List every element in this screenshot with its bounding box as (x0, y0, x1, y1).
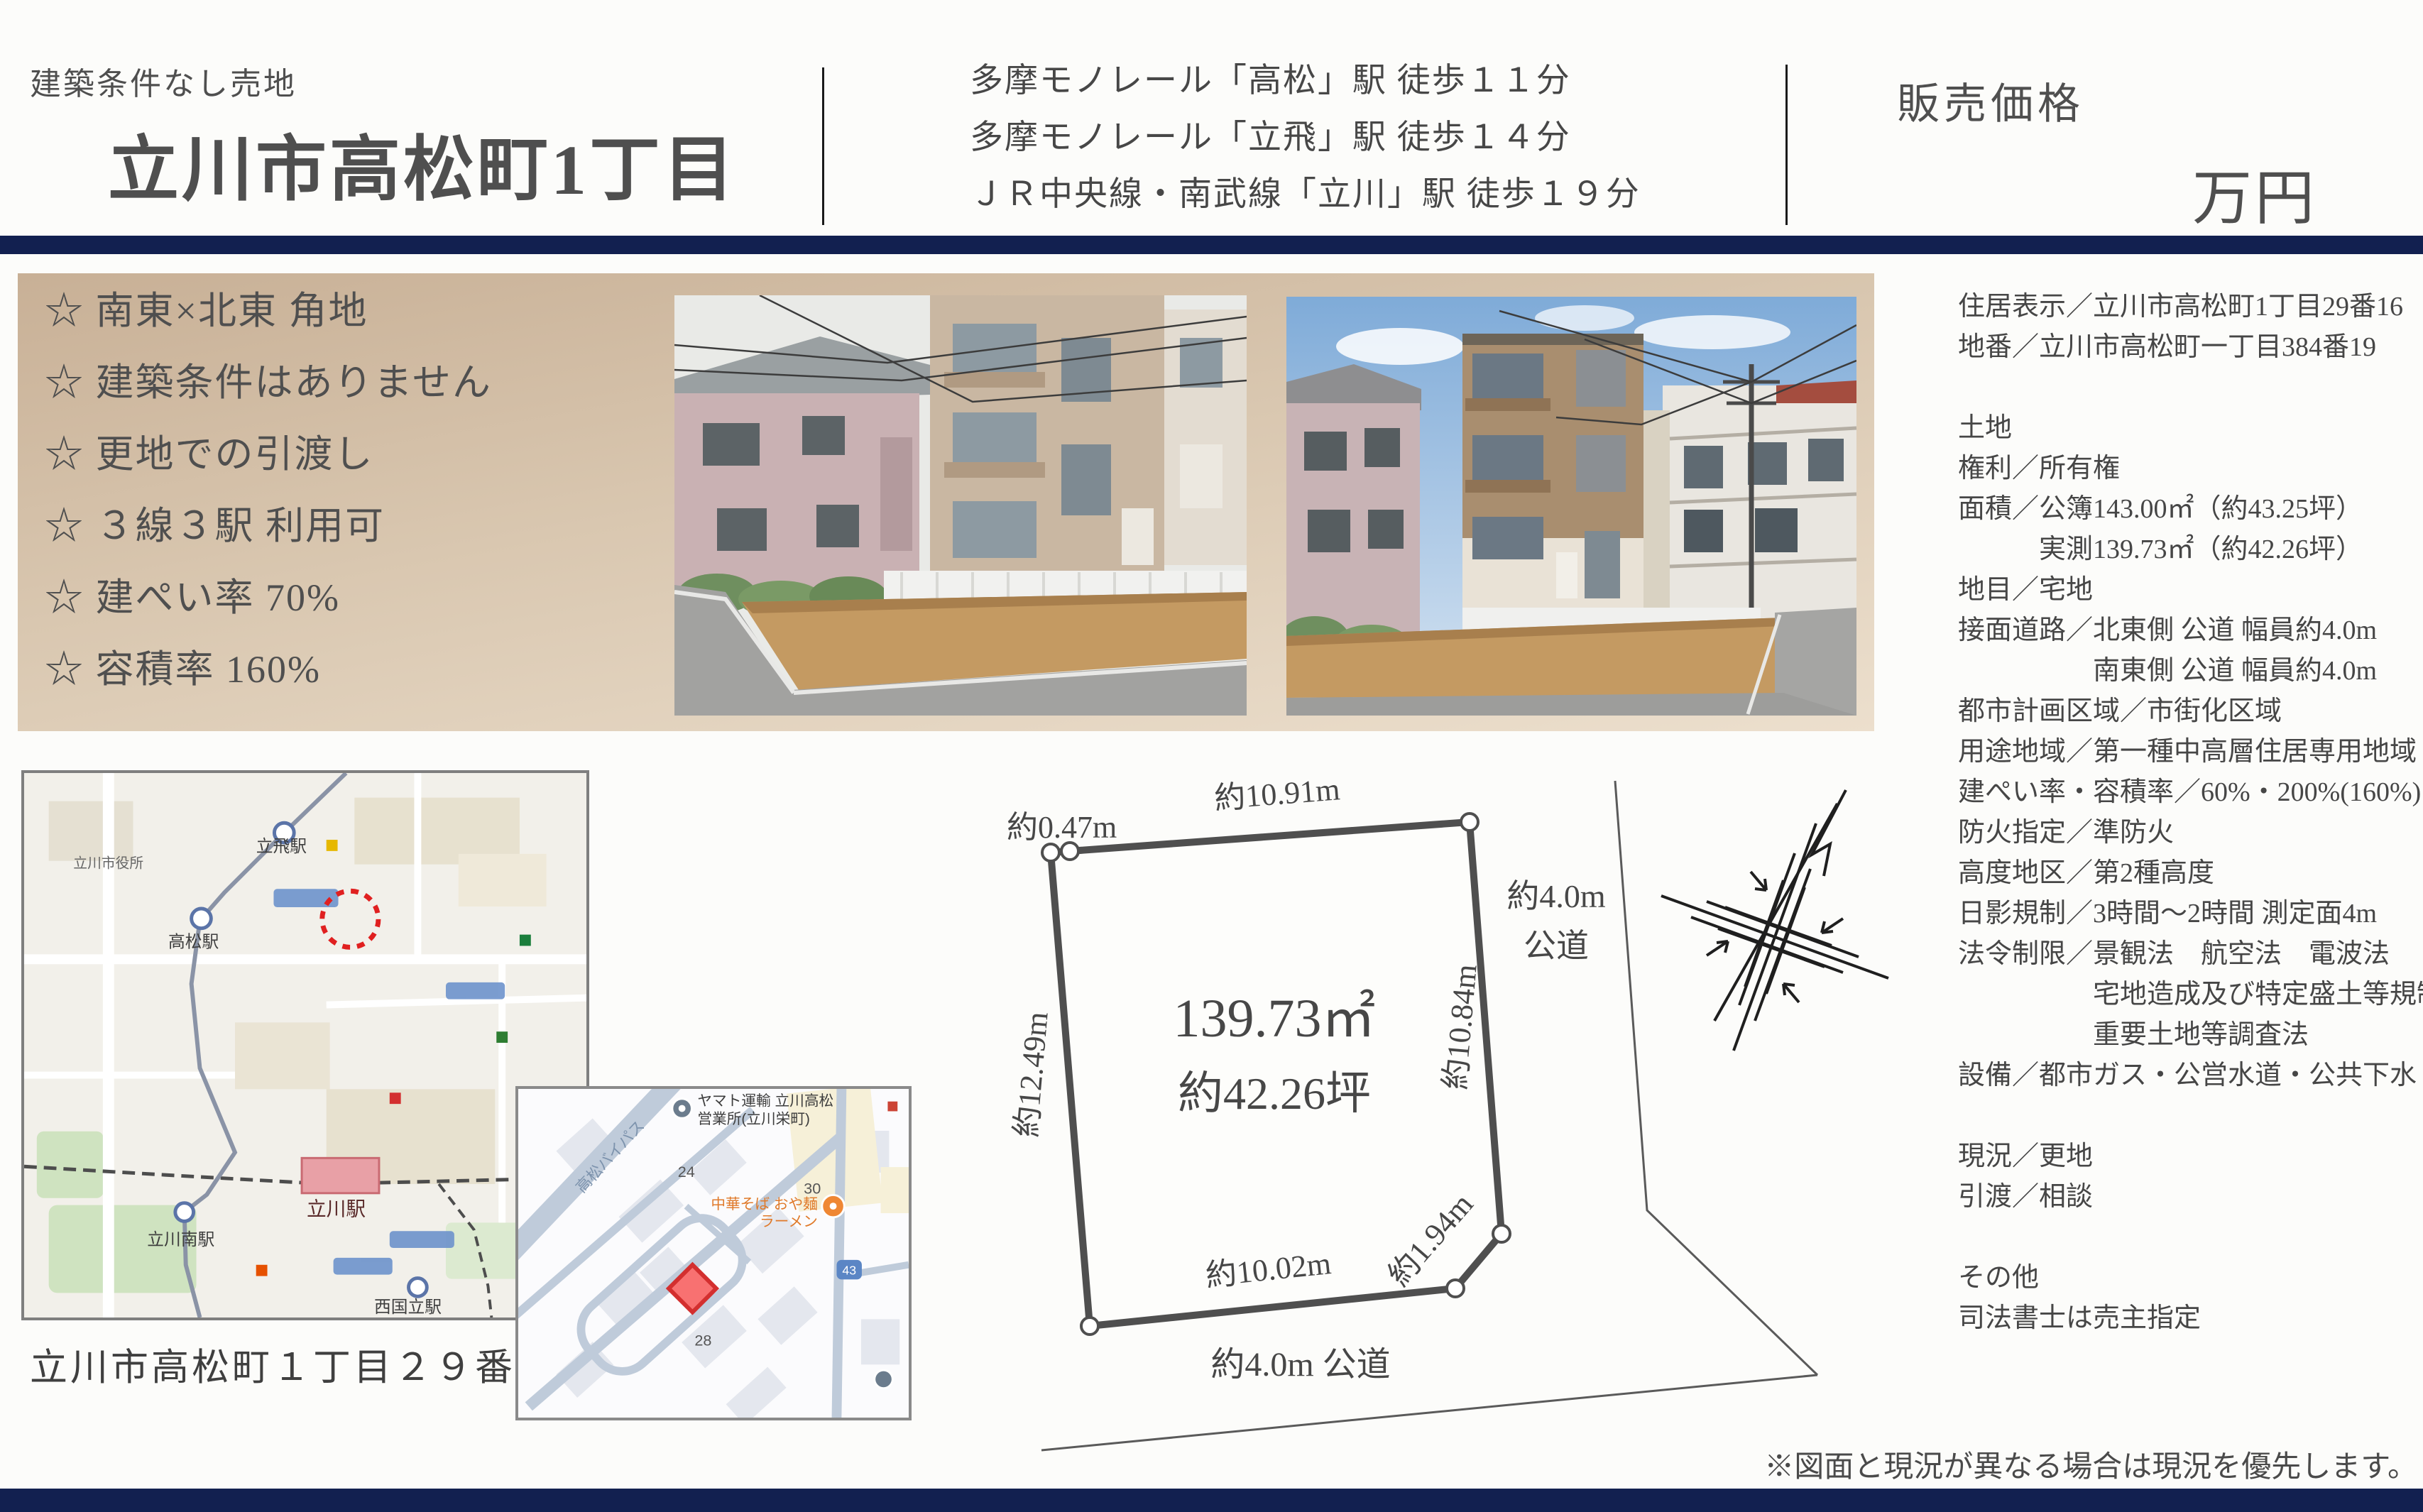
poi-icon (887, 1102, 897, 1112)
road-bottom-label: 約4.0m 公道 (1210, 1346, 1390, 1384)
price-label: 販売価格 (1897, 70, 2084, 131)
poi-icon (496, 1031, 508, 1043)
wide-area-map: 立飛駅 高松駅 立川駅 立川南駅 西国立駅 立川市役所 (21, 770, 589, 1320)
detail-line: 防火指定／準防火 (1958, 813, 2423, 853)
footer-rule-bar (0, 1489, 2423, 1512)
lot-area-m2: 139.73㎡ (1174, 989, 1376, 1048)
pin-yamato-dot (679, 1105, 686, 1112)
inset-label-24: 24 (678, 1163, 695, 1180)
pin-misc-icon (875, 1370, 893, 1388)
inset-label-30: 30 (804, 1179, 821, 1197)
detail-line: 設備／都市ガス・公営水道・公共下水 (1958, 1056, 2423, 1096)
station-access-block: 多摩モノレール「高松」駅 徒歩１１分 多摩モノレール「立飛」駅 徒歩１４分 ＪＲ… (970, 64, 1641, 234)
detail-line (1958, 368, 2423, 408)
poi-icon (327, 840, 338, 851)
map-label-tachihi: 立飛駅 (256, 837, 307, 856)
inset-label-yamato-1: ヤマト運輸 立川高松 (697, 1093, 833, 1110)
station-icon-tachikawa (302, 1158, 379, 1193)
detail-line: 接面道路／北東側 公道 幅員約4.0m (1958, 610, 2423, 651)
detail-line: 地番／立川市高松町一丁目384番19 (1958, 327, 2423, 368)
map-caption: 立川市高松町１丁目２９番１６ (30, 1337, 596, 1391)
detail-line: 地目／宅地 (1958, 570, 2423, 610)
detail-line: 権利／所有権 (1958, 449, 2423, 489)
dim-top: 約10.91m (1213, 774, 1342, 816)
road-right-label-1: 約4.0m (1506, 878, 1606, 914)
highlight-item: ☆ 容積率 160% (45, 650, 492, 689)
detail-line: 南東側 公道 幅員約4.0m (1958, 651, 2423, 691)
map-label-tachikawa-minami: 立川南駅 (147, 1230, 214, 1249)
inset-street-map: 43 ヤマト運輸 立川高松 営業所(立川栄町) 高松バイパス 中華そば おや麺 … (515, 1086, 912, 1420)
detail-line: 法令制限／景観法 航空法 電波法 (1958, 934, 2423, 975)
inset-label-yamato-2: 営業所(立川栄町) (697, 1111, 810, 1127)
road-edge-bottom (1041, 1375, 1817, 1450)
map-label-takamatsu: 高松駅 (168, 932, 219, 951)
inset-label-ramen-2: ラーメン (760, 1214, 818, 1230)
inset-map-illustration: 43 ヤマト運輸 立川高松 営業所(立川栄町) 高松バイパス 中華そば おや麺 … (518, 1089, 909, 1418)
detail-line: 住居表示／立川市高松町1丁目29番16 (1958, 287, 2423, 327)
poi-icon (390, 1092, 401, 1104)
inset-label-ramen-1: 中華そば おや麺 (711, 1196, 818, 1212)
page-title: 立川市高松町1丁目 (108, 135, 737, 206)
property-details-list: 住居表示／立川市高松町1丁目29番16 地番／立川市高松町一丁目384番19 土… (1958, 287, 2423, 1339)
pin-ramen-dot (830, 1203, 837, 1210)
detail-line: 面積／公簿143.00㎡（約43.25坪） (1958, 489, 2423, 530)
map-label-tachikawa: 立川駅 (307, 1198, 366, 1220)
highlight-item: ☆ ３線３駅 利用可 (45, 507, 492, 545)
photo-lot-corner (674, 295, 1247, 716)
detail-line: 引渡／相談 (1958, 1177, 2423, 1217)
detail-line: 現況／更地 (1958, 1136, 2423, 1177)
photo-1-illustration (674, 295, 1247, 716)
highlight-item: ☆ 建築条件はありません (45, 363, 492, 402)
road-right-label-2: 公道 (1524, 928, 1589, 964)
lot-area-tsubo: 約42.26坪 (1178, 1068, 1371, 1119)
station-icon-takamatsu (192, 909, 212, 928)
dim-left: 約12.49m (1009, 1010, 1054, 1139)
detail-line: 司法書士は売主指定 (1958, 1298, 2423, 1339)
route-shield-number: 43 (842, 1264, 856, 1278)
access-line-1: 多摩モノレール「高松」駅 徒歩１１分 (970, 64, 1641, 98)
detail-line: その他 (1958, 1258, 2423, 1298)
property-type-label: 建築条件なし売地 (30, 58, 297, 104)
photo-2-illustration (1286, 297, 1856, 716)
access-line-3: ＪＲ中央線・南武線「立川」駅 徒歩１９分 (970, 177, 1641, 212)
detail-line: 重要土地等調査法 (1958, 1015, 2423, 1056)
detail-line: 高度地区／第2種高度 (1958, 853, 2423, 894)
detail-line: 土地 (1958, 408, 2423, 449)
lot-survey-diagram: 約0.47m 約10.91m 約12.49m 約10.84m 約1.94m 約1… (980, 774, 1896, 1469)
header-divider-left (822, 67, 824, 225)
highlight-item: ☆ 建ぺい率 70% (45, 579, 492, 617)
poi-icon (520, 935, 531, 946)
station-icon-nishikunitachi (409, 1278, 427, 1297)
flyer-page: 建築条件なし売地 立川市高松町1丁目 多摩モノレール「高松」駅 徒歩１１分 多摩… (0, 0, 2423, 1512)
detail-line: 実測139.73㎡（約42.26坪） (1958, 530, 2423, 570)
detail-line: 用途地域／第一種中高層住居専用地域 (1958, 732, 2423, 772)
access-line-2: 多摩モノレール「立飛」駅 徒歩１４分 (970, 121, 1641, 155)
highlight-item: ☆ 更地での引渡し (45, 435, 492, 473)
detail-line: 日影規制／3時間～2時間 測定面4m (1958, 894, 2423, 934)
disclaimer-note: ※図面と現況が異なる場合は現況を優先します。 (1764, 1442, 2417, 1486)
highlight-item: ☆ 南東×北東 角地 (45, 292, 492, 330)
detail-line: 都市計画区域／市街化区域 (1958, 691, 2423, 732)
inset-label-28: 28 (694, 1332, 711, 1349)
map-label-nishikunitachi: 西国立駅 (374, 1298, 442, 1317)
highlight-list: ☆ 南東×北東 角地 ☆ 建築条件はありません ☆ 更地での引渡し ☆ ３線３駅… (45, 292, 492, 722)
header-divider-right (1785, 65, 1788, 225)
detail-line: 宅地造成及び特定盛土等規制法 (1958, 975, 2423, 1015)
wide-map-illustration: 立飛駅 高松駅 立川駅 立川南駅 西国立駅 立川市役所 (24, 773, 586, 1317)
poi-icon (256, 1265, 268, 1276)
detail-line: 建ぺい率・容積率／60%・200%(160%) (1958, 772, 2423, 813)
road-edge-right (1615, 781, 1817, 1375)
map-label-city-hall: 立川市役所 (73, 856, 143, 872)
station-icon-tachikawa-minami (175, 1203, 194, 1222)
detail-line (1958, 1096, 2423, 1136)
price-unit: 万円 (2192, 150, 2317, 236)
photo-lot-street (1286, 297, 1856, 716)
header-rule-bar (0, 236, 2423, 254)
north-arrow-compass (1661, 790, 1888, 1051)
detail-line (1958, 1217, 2423, 1258)
dim-047: 約0.47m (1007, 810, 1117, 845)
